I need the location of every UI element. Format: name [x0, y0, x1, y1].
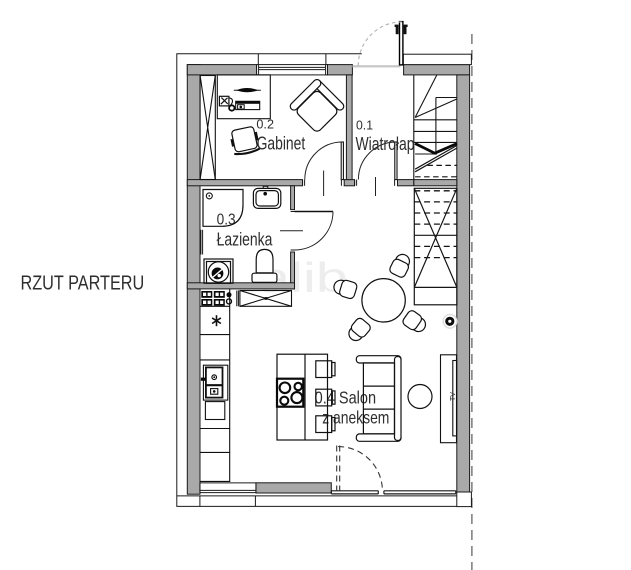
svg-text:Gabinet: Gabinet: [257, 132, 306, 153]
svg-text:0.4 Salon: 0.4 Salon: [315, 388, 377, 408]
svg-text:RZUT PARTERU: RZUT PARTERU: [21, 273, 145, 295]
svg-text:Łazienka: Łazienka: [217, 229, 274, 249]
svg-text:0.1: 0.1: [356, 117, 373, 132]
svg-text:TV: TV: [450, 392, 457, 401]
svg-text:Wiatrołap: Wiatrołap: [356, 133, 415, 154]
